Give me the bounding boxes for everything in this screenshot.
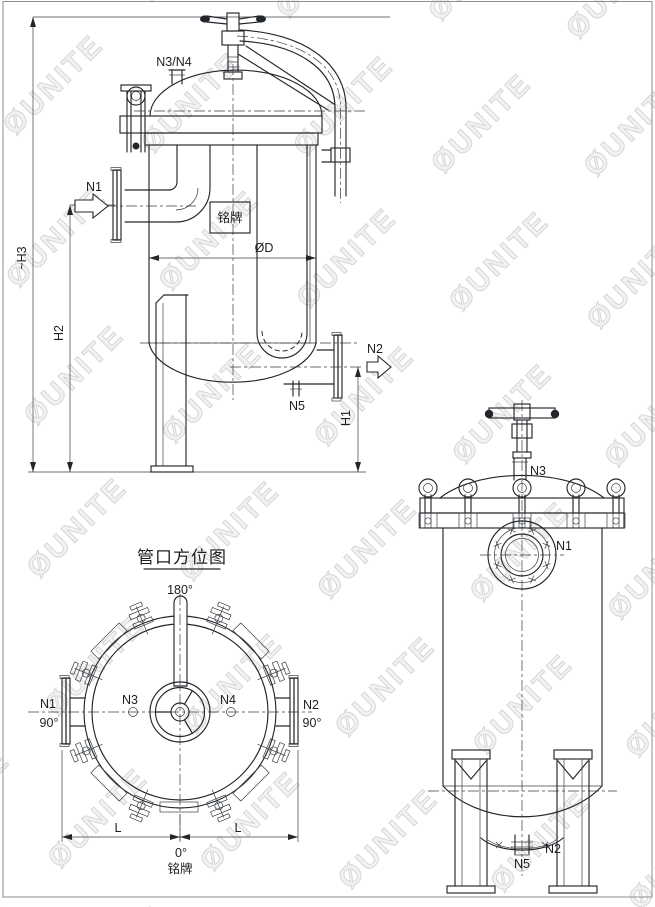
top-n3-label: N3 (122, 693, 138, 707)
top-n4-label: N4 (220, 693, 236, 707)
top-n1-angle: 90° (40, 716, 59, 730)
angle-0-label: 0° (175, 846, 187, 860)
nozzle-n2-top (276, 676, 298, 747)
dim-h1-label: H1 (339, 410, 353, 426)
nozzle-n3-front (512, 458, 528, 480)
dim-l-left: L (115, 821, 122, 835)
orientation-title: 管口方位图 (137, 548, 227, 567)
inlet-nozzle-n1 (106, 145, 210, 243)
orientation-view: 管口方位图 180° (28, 548, 321, 876)
top-n1-label: N1 (40, 697, 56, 711)
top-nameplate-label: 铭牌 (167, 861, 192, 876)
top-n2-label: N2 (303, 698, 319, 712)
side-elevation-view: ~H3 H2 H1 (15, 13, 391, 472)
support-leg-front-right (549, 750, 597, 893)
davit-pipe-top (174, 596, 187, 686)
cover-hinge (121, 85, 151, 152)
nozzle-n1-top (60, 676, 85, 747)
angle-180-label: 180° (167, 583, 193, 597)
drawing-sheet: ØUNITE ØUNITE ØUNITE ØUNITE ØUNITE ØUNIT… (0, 0, 655, 907)
side-n1-label: N1 (86, 180, 102, 194)
flow-in-arrow (75, 194, 108, 218)
side-n2-label: N2 (367, 342, 383, 356)
bottom-head-front (443, 786, 602, 817)
support-leg-side (151, 295, 193, 472)
side-n5-label: N5 (289, 399, 305, 413)
front-n2-label: N2 (545, 842, 561, 856)
dim-diameter-label: ØD (255, 241, 274, 255)
filter-vessel-drawing: ~H3 H2 H1 (0, 0, 655, 907)
top-n2-angle: 90° (303, 716, 322, 730)
front-n1-label: N1 (556, 539, 572, 553)
dim-l-right: L (235, 821, 242, 835)
dim-h3-label: ~H3 (15, 246, 29, 269)
front-n5-label: N5 (514, 857, 530, 871)
nameplate-label: 铭牌 (217, 210, 242, 225)
dim-h2-label: H2 (52, 325, 66, 341)
front-elevation-view: N3 (419, 400, 625, 893)
vessel-cover (120, 70, 368, 145)
drain-nozzle-n5 (290, 381, 302, 396)
side-n3n4-label: N3/N4 (156, 55, 191, 69)
sheet-border (3, 2, 652, 898)
flow-out-arrow (367, 356, 391, 378)
support-leg-front-left (447, 750, 495, 893)
